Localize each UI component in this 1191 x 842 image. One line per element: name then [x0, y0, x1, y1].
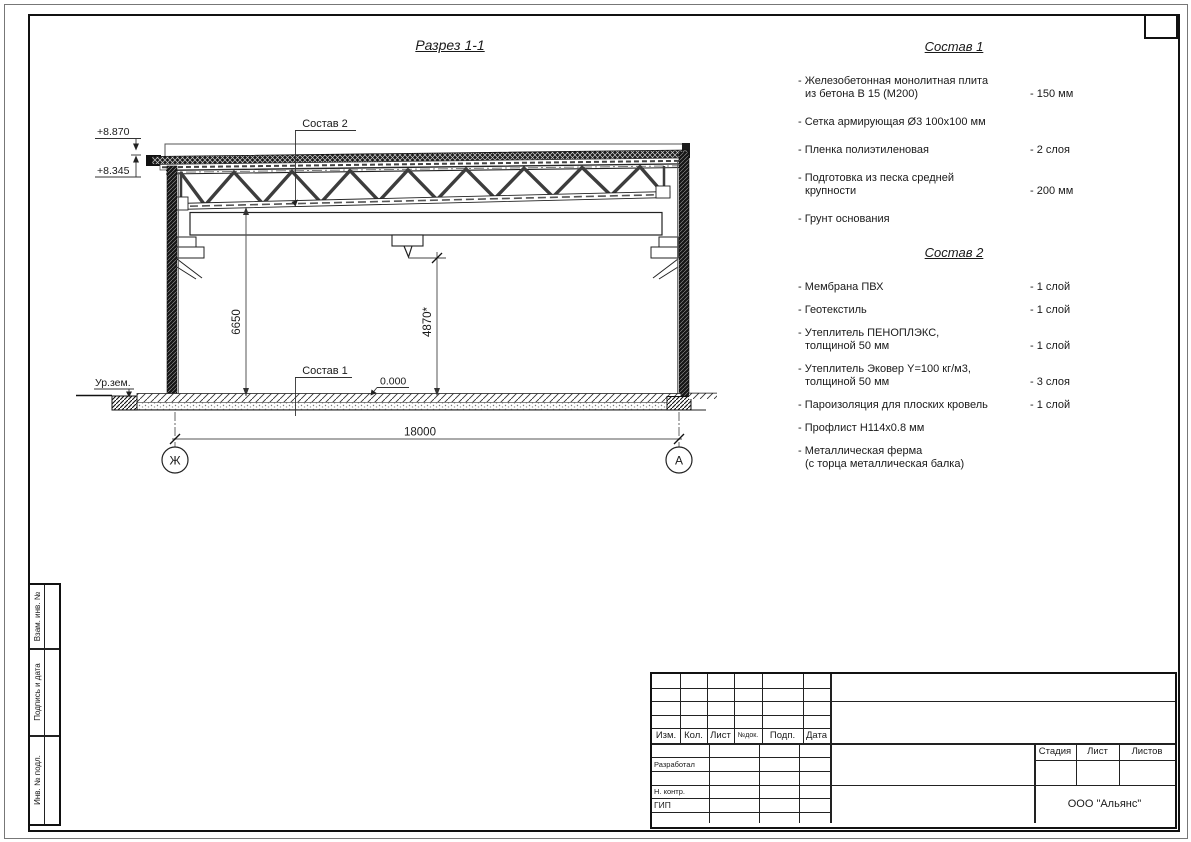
elevation-roof: +8.345 [95, 155, 141, 177]
spec2-item: - Профлист Н114х0.8 мм [798, 422, 1110, 435]
tb-stamp-sheet: Лист [1076, 743, 1119, 760]
spec2-item: - Утеплитель ПЕНОПЛЭКС,толщиной 50 мм - … [798, 327, 1110, 353]
sidebar-stamp: Взам. инв. № Подпись и дата Инв. № подл. [28, 583, 61, 826]
svg-text:+8.345: +8.345 [97, 165, 130, 177]
tb-stamp-stage: Стадия [1034, 743, 1076, 760]
svg-text:4870*: 4870* [422, 306, 434, 337]
frame-corner-box [1144, 14, 1178, 39]
level-zero-mark: 0.000 [371, 376, 410, 396]
sidebar-label-vzam: Взам. инв. № [31, 586, 44, 647]
elevation-parapet: +8.870 [95, 126, 141, 151]
spec1-title: Состав 1 [798, 40, 1110, 53]
section-drawing: Ур.зем. +8.870 +8.345 Состав 2 [60, 25, 740, 485]
axis-bubble-right: А [666, 447, 692, 473]
spec2-item: - Металлическая ферма(с торца металличес… [798, 445, 1110, 471]
tb-col-data: Дата [803, 728, 830, 743]
svg-text:А: А [675, 454, 683, 468]
left-corbel [177, 237, 204, 279]
title-block: Изм. Кол. Лист №док. Подп. Дата Разработ… [650, 672, 1177, 829]
axis-bubble-left: Ж [162, 447, 188, 473]
truss [166, 164, 684, 210]
beam [190, 213, 662, 236]
spec2-item: - Мембрана ПВХ - 1 слой [798, 281, 1110, 294]
svg-text:Состав 1: Состав 1 [302, 365, 348, 377]
ground-level-mark: Ур.зем. [94, 377, 134, 398]
svg-text:0.000: 0.000 [380, 376, 406, 388]
svg-text:+8.870: +8.870 [97, 126, 130, 138]
spec2-item: - Пароизоляция для плоских кровель - 1 с… [798, 399, 1110, 412]
spec1-item: - Грунт основания [798, 213, 1110, 226]
dim-18000: 18000 [170, 412, 684, 447]
spec-sostav-1: Состав 1 - Железобетонная монолитная пли… [798, 40, 1110, 241]
drawing-sheet: Разрез 1-1 [0, 0, 1191, 842]
tb-col-izm: Изм. [652, 728, 680, 743]
tb-col-podp: Подп. [762, 728, 803, 743]
svg-text:Состав 2: Состав 2 [302, 118, 348, 130]
spec2-item: - Геотекстиль - 1 слой [798, 304, 1110, 317]
tb-col-list: Лист [707, 728, 734, 743]
svg-text:18000: 18000 [404, 427, 436, 439]
spec1-item: - Подготовка из песка среднейкрупности -… [798, 172, 1110, 198]
floor-slab [112, 394, 706, 411]
svg-text:6650: 6650 [231, 309, 243, 335]
left-column [167, 166, 177, 396]
hook-element [392, 235, 446, 258]
tb-role-gip: ГИП [654, 798, 709, 812]
sidebar-label-podpis: Подпись и дата [31, 650, 44, 734]
spec2-title: Состав 2 [798, 246, 1110, 259]
svg-text:Ур.зем.: Ур.зем. [95, 377, 131, 389]
spec1-item: - Пленка полиэтиленовая - 2 слоя [798, 144, 1110, 157]
tb-col-ndok: №док. [734, 728, 762, 743]
dim-4870: 4870* [422, 252, 442, 396]
right-column [679, 152, 689, 396]
tb-stamp-sheets: Листов [1119, 743, 1175, 760]
tb-company: ООО "Альянс" [1034, 785, 1175, 823]
spec2-item: - Утеплитель Эковер Y=100 кг/м3,толщиной… [798, 363, 1110, 389]
spec1-item: - Железобетонная монолитная плитаиз бето… [798, 75, 1110, 101]
tb-role-ncontrol: Н. контр. [654, 785, 709, 798]
spec1-item: - Сетка армирующая Ø3 100х100 мм [798, 116, 1110, 129]
spec-sostav-2: Состав 2 - Мембрана ПВХ - 1 слой - Геоте… [798, 246, 1110, 481]
svg-text:Ж: Ж [169, 454, 180, 468]
tb-role-developer: Разработал [654, 757, 709, 771]
right-corbel [651, 237, 678, 279]
tb-col-kol: Кол. [680, 728, 707, 743]
sidebar-label-inv: Инв. № подл. [31, 737, 44, 823]
